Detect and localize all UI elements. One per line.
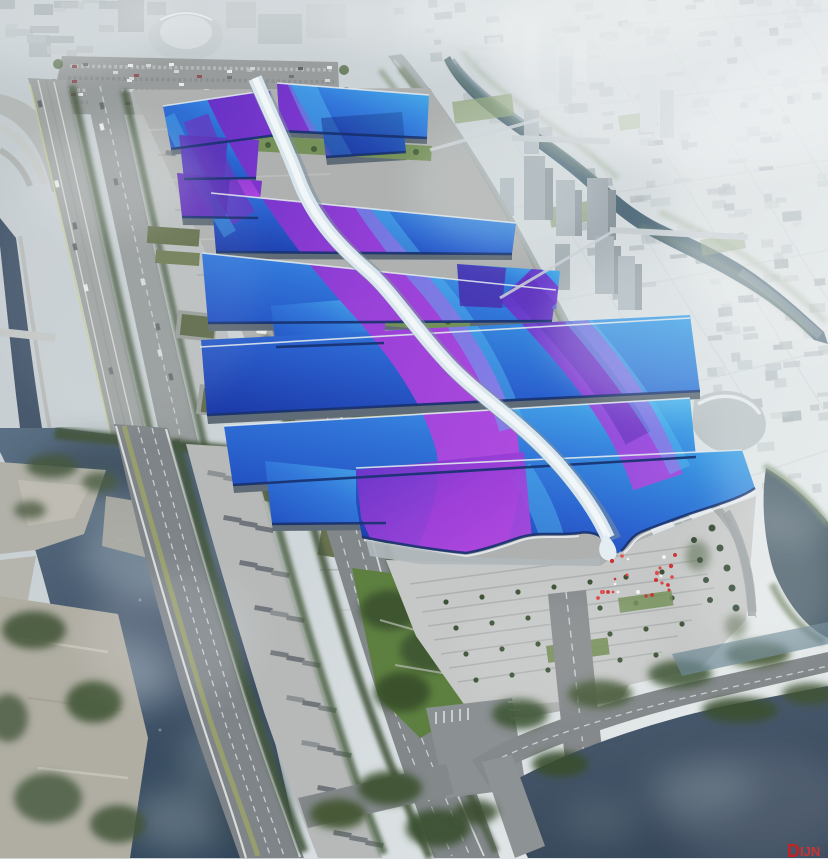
svg-text:IJN: IJN (800, 844, 820, 859)
svg-text:D: D (787, 841, 800, 859)
